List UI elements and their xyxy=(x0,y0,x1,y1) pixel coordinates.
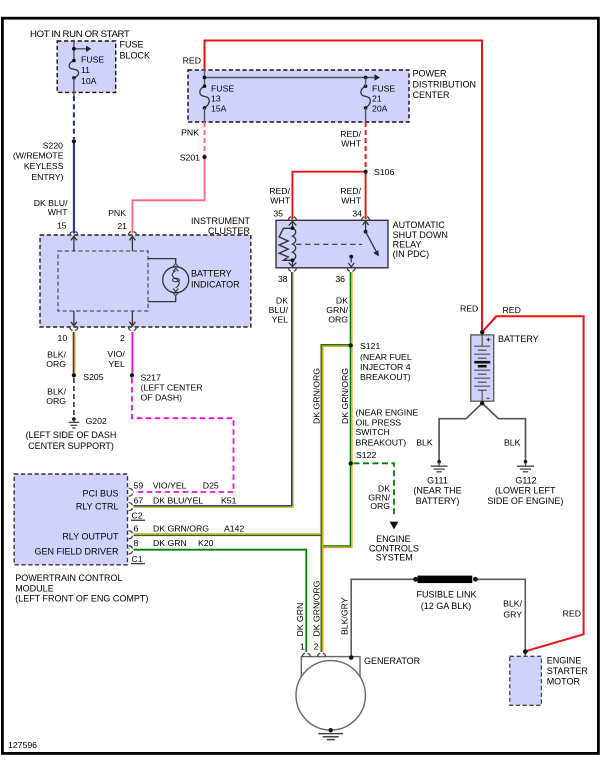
svg-text:S220: S220 xyxy=(43,141,63,151)
svg-text:PNK: PNK xyxy=(108,208,126,218)
svg-text:MOTOR: MOTOR xyxy=(547,677,581,687)
svg-text:ORG: ORG xyxy=(370,501,390,511)
svg-text:FUSE: FUSE xyxy=(372,84,395,94)
svg-text:11: 11 xyxy=(81,65,90,75)
svg-text:59: 59 xyxy=(134,480,144,490)
svg-text:RLY CTRL: RLY CTRL xyxy=(76,502,119,512)
svg-text:BATTERY): BATTERY) xyxy=(416,496,460,506)
svg-text:VIO/YEL: VIO/YEL xyxy=(153,480,187,490)
svg-text:VIO/: VIO/ xyxy=(107,349,125,359)
svg-text:D25: D25 xyxy=(203,480,219,490)
svg-text:ENGINE: ENGINE xyxy=(547,656,582,666)
svg-text:G112: G112 xyxy=(515,475,536,485)
svg-text:S106: S106 xyxy=(374,167,394,177)
svg-text:RED/: RED/ xyxy=(269,186,290,196)
svg-text:SHUT DOWN: SHUT DOWN xyxy=(393,230,448,240)
svg-text:DK GRN/ORG: DK GRN/ORG xyxy=(153,523,209,533)
svg-text:SYSTEM: SYSTEM xyxy=(376,553,413,563)
svg-text:2: 2 xyxy=(120,333,125,343)
svg-text:BLK: BLK xyxy=(504,437,521,447)
svg-text:8: 8 xyxy=(134,538,139,548)
svg-text:ORG: ORG xyxy=(328,315,348,325)
svg-text:S122: S122 xyxy=(356,450,376,460)
svg-text:DK GRN/ORG: DK GRN/ORG xyxy=(312,580,322,636)
svg-text:DK: DK xyxy=(336,296,348,306)
svg-text:RED/: RED/ xyxy=(340,129,361,139)
svg-text:MODULE: MODULE xyxy=(15,583,54,593)
svg-text:RELAY: RELAY xyxy=(393,240,422,250)
svg-text:FUSIBLE LINK: FUSIBLE LINK xyxy=(416,590,476,600)
svg-text:(NEAR ENGINE: (NEAR ENGINE xyxy=(356,408,419,418)
svg-text:G202: G202 xyxy=(86,416,107,426)
svg-text:CLUSTER: CLUSTER xyxy=(208,226,251,236)
svg-text:10A: 10A xyxy=(81,76,97,86)
svg-text:(NEAR THE: (NEAR THE xyxy=(413,486,461,496)
svg-text:G111: G111 xyxy=(427,475,448,485)
svg-text:K20: K20 xyxy=(198,538,214,548)
svg-text:(LEFT CENTER: (LEFT CENTER xyxy=(141,383,203,393)
svg-text:DISTRIBUTION: DISTRIBUTION xyxy=(413,80,477,90)
svg-text:BLOCK: BLOCK xyxy=(120,51,151,61)
svg-text:BREAKOUT): BREAKOUT) xyxy=(360,372,411,382)
svg-text:GRN/: GRN/ xyxy=(326,305,348,315)
svg-text:INSTRUMENT: INSTRUMENT xyxy=(191,216,250,226)
svg-text:BLK/: BLK/ xyxy=(503,599,522,609)
svg-text:BLK/: BLK/ xyxy=(47,350,66,360)
svg-text:BLU/: BLU/ xyxy=(269,305,289,315)
svg-text:AUTOMATIC: AUTOMATIC xyxy=(393,220,446,230)
svg-text:(LEFT SIDE OF DASH: (LEFT SIDE OF DASH xyxy=(26,430,117,440)
svg-text:FUSE: FUSE xyxy=(211,84,234,94)
svg-text:K51: K51 xyxy=(221,495,237,505)
svg-text:RED: RED xyxy=(460,304,478,314)
svg-text:SWITCH: SWITCH xyxy=(356,427,390,437)
svg-text:HOT IN RUN OR START: HOT IN RUN OR START xyxy=(30,29,130,40)
svg-text:GRY: GRY xyxy=(503,610,522,620)
svg-text:BREAKOUT): BREAKOUT) xyxy=(356,438,407,448)
svg-text:INJECTOR 4: INJECTOR 4 xyxy=(360,362,411,372)
svg-text:67: 67 xyxy=(134,495,144,505)
svg-text:S201: S201 xyxy=(180,153,200,163)
svg-text:S217: S217 xyxy=(141,373,161,383)
svg-text:C1: C1 xyxy=(132,554,143,564)
svg-text:21: 21 xyxy=(117,221,127,231)
svg-text:S121: S121 xyxy=(360,341,380,351)
svg-text:FUSE: FUSE xyxy=(81,55,104,65)
svg-text:ENTRY): ENTRY) xyxy=(31,172,63,182)
svg-text:RED: RED xyxy=(563,609,581,619)
svg-text:STARTER: STARTER xyxy=(547,666,589,676)
svg-text:36: 36 xyxy=(335,274,345,284)
svg-text:20A: 20A xyxy=(372,104,388,114)
svg-text:FUSE: FUSE xyxy=(120,40,144,50)
svg-text:6: 6 xyxy=(134,523,139,533)
svg-text:WHT: WHT xyxy=(48,207,68,217)
svg-text:A142: A142 xyxy=(224,523,244,533)
svg-text:CENTER SUPPORT): CENTER SUPPORT) xyxy=(28,441,114,451)
svg-text:RED: RED xyxy=(183,56,201,66)
svg-text:INDICATOR: INDICATOR xyxy=(191,280,240,290)
svg-text:13: 13 xyxy=(211,94,221,104)
svg-text:(LEFT FRONT OF ENG COMPT): (LEFT FRONT OF ENG COMPT) xyxy=(15,593,148,603)
svg-text:BLK: BLK xyxy=(416,437,433,447)
svg-text:1: 1 xyxy=(300,642,305,652)
svg-text:WHT: WHT xyxy=(270,196,290,206)
svg-text:RED: RED xyxy=(503,305,521,315)
svg-text:15: 15 xyxy=(57,221,67,231)
svg-text:S205: S205 xyxy=(83,372,103,382)
svg-text:35: 35 xyxy=(273,209,283,219)
svg-text:34: 34 xyxy=(352,209,362,219)
svg-text:(IN PDC): (IN PDC) xyxy=(393,249,430,259)
svg-text:ORG: ORG xyxy=(46,396,66,406)
svg-text:WHT: WHT xyxy=(341,139,361,149)
svg-text:38: 38 xyxy=(278,274,288,284)
svg-text:RED/: RED/ xyxy=(340,186,361,196)
svg-text:GENERATOR: GENERATOR xyxy=(364,656,421,666)
svg-text:CENTER: CENTER xyxy=(413,90,451,100)
svg-text:21: 21 xyxy=(372,94,382,104)
svg-text:DK GRN: DK GRN xyxy=(295,603,305,637)
svg-text:YEL: YEL xyxy=(272,315,289,325)
svg-text:YEL: YEL xyxy=(108,359,125,369)
svg-text:POWERTRAIN CONTROL: POWERTRAIN CONTROL xyxy=(15,573,122,583)
svg-text:15A: 15A xyxy=(211,104,227,114)
svg-text:(12 GA BLK): (12 GA BLK) xyxy=(421,601,472,611)
svg-text:OF DASH): OF DASH) xyxy=(141,393,183,403)
svg-text:OIL PRESS: OIL PRESS xyxy=(356,418,402,428)
svg-text:BATTERY: BATTERY xyxy=(191,269,232,279)
svg-text:DK GRN: DK GRN xyxy=(153,538,187,548)
svg-text:BLK/GRY: BLK/GRY xyxy=(340,597,350,635)
svg-text:DK BLU/YEL: DK BLU/YEL xyxy=(153,495,203,505)
svg-text:BLK/: BLK/ xyxy=(47,387,66,397)
svg-text:RLY OUTPUT: RLY OUTPUT xyxy=(62,532,119,542)
svg-text:DK GRN/ORG: DK GRN/ORG xyxy=(340,368,350,424)
svg-text:KEYLESS: KEYLESS xyxy=(24,161,64,171)
svg-text:C2: C2 xyxy=(132,511,143,521)
svg-text:GEN FIELD DRIVER: GEN FIELD DRIVER xyxy=(34,547,119,557)
svg-text:ORG: ORG xyxy=(46,359,66,369)
svg-text:2: 2 xyxy=(314,642,319,652)
svg-text:BATTERY: BATTERY xyxy=(498,334,539,344)
svg-text:(NEAR FUEL: (NEAR FUEL xyxy=(360,352,412,362)
svg-text:POWER: POWER xyxy=(413,69,448,79)
svg-text:WHT: WHT xyxy=(341,196,361,206)
svg-text:(W/REMOTE: (W/REMOTE xyxy=(13,151,64,161)
svg-text:PCI BUS: PCI BUS xyxy=(82,489,118,499)
svg-text:DK GRN/ORG: DK GRN/ORG xyxy=(312,368,322,424)
svg-text:(LOWER LEFT: (LOWER LEFT xyxy=(495,486,556,496)
svg-text:SIDE OF ENGINE): SIDE OF ENGINE) xyxy=(487,496,563,506)
svg-text:127596: 127596 xyxy=(8,740,37,750)
svg-text:DK: DK xyxy=(276,296,288,306)
svg-text:PNK: PNK xyxy=(181,128,199,138)
svg-text:10: 10 xyxy=(58,333,68,343)
